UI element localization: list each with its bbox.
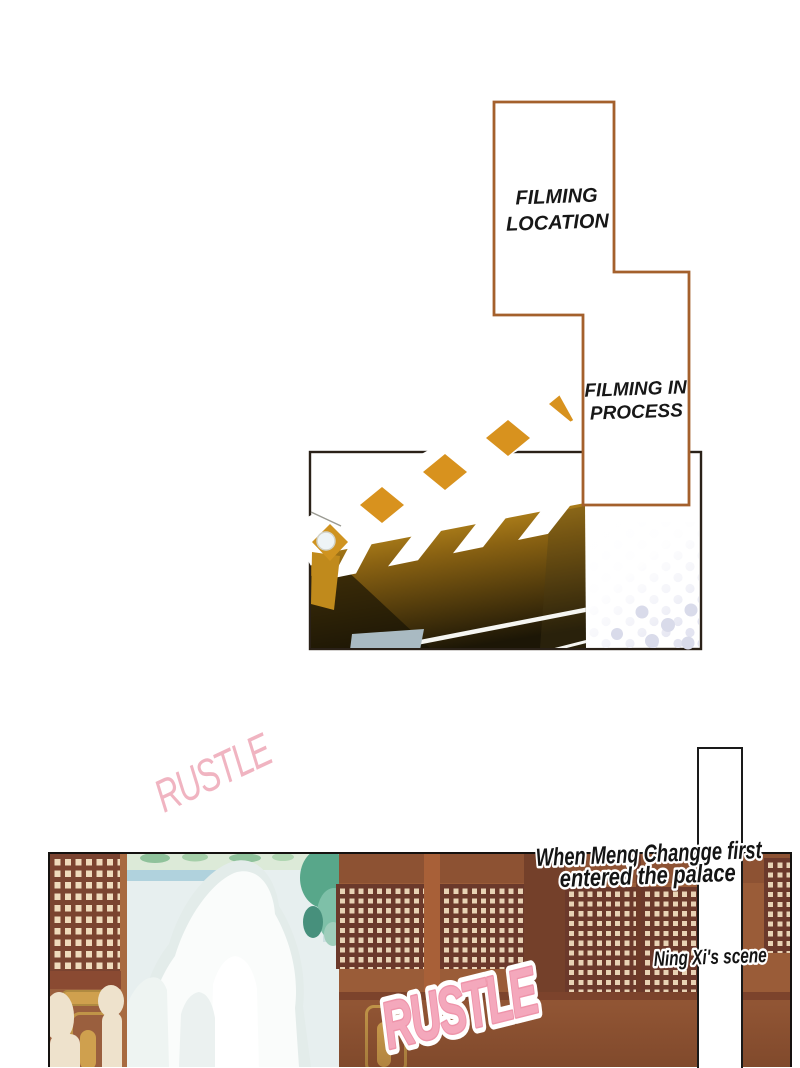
svg-text:entered the palace: entered the palace [559, 859, 736, 893]
svg-text:RUSTLE: RUSTLE [374, 952, 546, 1063]
svg-text:Ning Xi's scene: Ning Xi's scene [653, 944, 767, 971]
